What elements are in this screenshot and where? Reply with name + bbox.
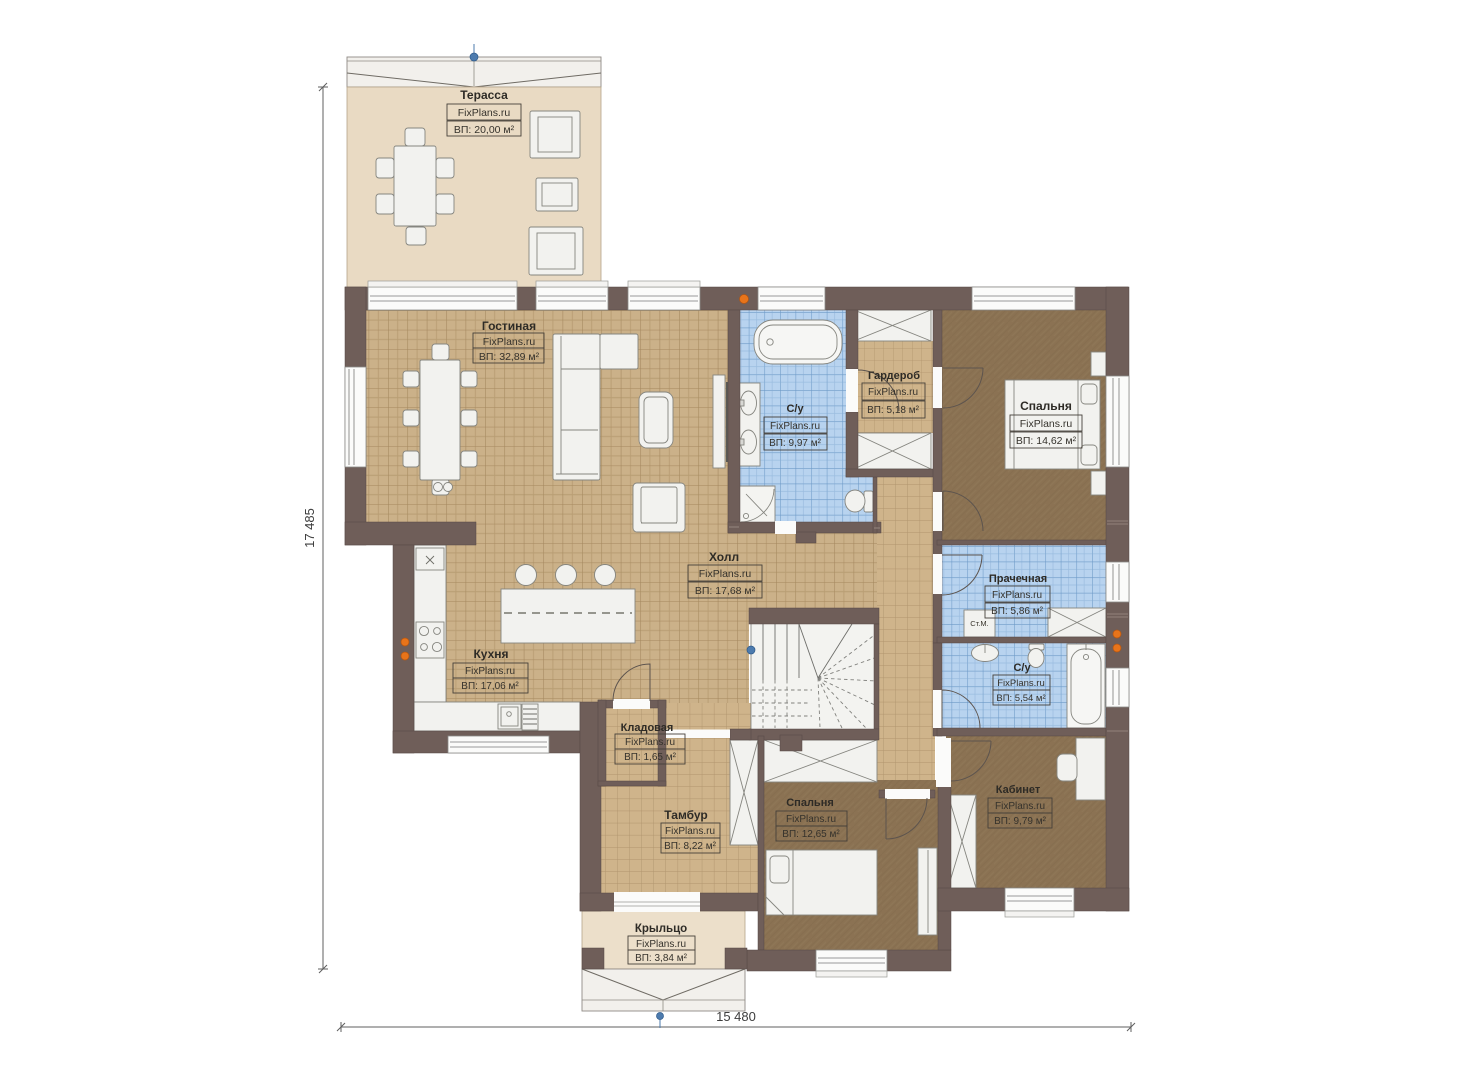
svg-text:FixPlans.ru: FixPlans.ru [868,387,918,398]
svg-text:FixPlans.ru: FixPlans.ru [786,814,836,825]
svg-text:FixPlans.ru: FixPlans.ru [458,107,511,119]
svg-text:FixPlans.ru: FixPlans.ru [665,826,715,837]
svg-text:Кладовая: Кладовая [621,722,674,734]
svg-text:Холл: Холл [709,550,739,564]
svg-text:ВП: 9,79 м²: ВП: 9,79 м² [994,816,1047,827]
svg-text:FixPlans.ru: FixPlans.ru [1020,418,1073,430]
svg-text:ВП: 17,68 м²: ВП: 17,68 м² [695,585,756,597]
svg-text:ВП: 3,84 м²: ВП: 3,84 м² [635,953,688,964]
svg-text:Кухня: Кухня [473,647,508,661]
svg-text:Тамбур: Тамбур [664,808,708,822]
svg-text:ВП: 12,65 м²: ВП: 12,65 м² [782,829,840,840]
svg-text:Гостиная: Гостиная [482,319,536,333]
svg-text:17 485: 17 485 [302,508,317,548]
svg-text:ВП: 5,18 м²: ВП: 5,18 м² [867,405,920,416]
svg-text:FixPlans.ru: FixPlans.ru [636,939,686,950]
svg-text:С/у: С/у [786,403,804,415]
svg-text:Спальня: Спальня [1020,399,1072,413]
svg-text:FixPlans.ru: FixPlans.ru [770,421,820,432]
svg-text:ВП: 14,62 м²: ВП: 14,62 м² [1016,435,1077,447]
svg-text:FixPlans.ru: FixPlans.ru [995,801,1045,812]
svg-text:С/у: С/у [1013,662,1031,674]
svg-text:ВП: 20,00 м²: ВП: 20,00 м² [454,124,515,136]
svg-text:ВП: 1,65 м²: ВП: 1,65 м² [624,752,677,763]
svg-text:FixPlans.ru: FixPlans.ru [997,678,1045,689]
svg-text:Крыльцо: Крыльцо [635,923,687,935]
svg-text:15 480: 15 480 [716,1009,756,1024]
svg-text:ВП: 8,22 м²: ВП: 8,22 м² [664,841,717,852]
svg-text:ВП: 9,97 м²: ВП: 9,97 м² [769,438,822,449]
svg-text:FixPlans.ru: FixPlans.ru [699,568,752,580]
svg-text:FixPlans.ru: FixPlans.ru [625,737,675,748]
svg-text:Кабинет: Кабинет [996,784,1041,796]
svg-text:FixPlans.ru: FixPlans.ru [992,590,1042,601]
svg-text:FixPlans.ru: FixPlans.ru [483,336,536,348]
svg-text:ВП: 32,89 м²: ВП: 32,89 м² [479,351,540,363]
svg-text:Терасса: Терасса [460,88,508,102]
svg-text:Ст.М.: Ст.М. [970,619,988,628]
svg-text:ВП: 5,54 м²: ВП: 5,54 м² [996,693,1045,704]
svg-text:Спальня: Спальня [786,797,834,809]
svg-text:Гардероб: Гардероб [868,370,920,382]
svg-text:ВП: 17,06 м²: ВП: 17,06 м² [461,681,519,692]
svg-text:FixPlans.ru: FixPlans.ru [465,666,515,677]
svg-text:ВП: 5,86 м²: ВП: 5,86 м² [991,606,1044,617]
svg-text:Прачечная: Прачечная [989,573,1047,585]
